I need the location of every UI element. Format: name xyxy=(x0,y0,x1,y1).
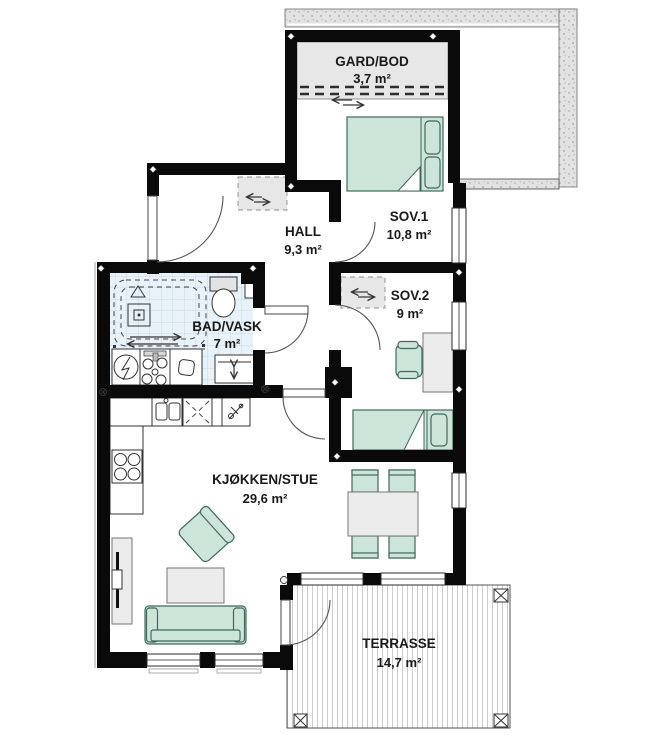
deck-post xyxy=(294,714,307,727)
double-bed xyxy=(347,117,443,191)
room-label-sov1: SOV.1 xyxy=(390,209,429,224)
floorplan-page: GARD/BOD 3,7 m² SOV.1 10,8 m² HALL 9,3 m… xyxy=(0,0,650,750)
dining-table xyxy=(348,492,418,536)
window-bottom-1 xyxy=(147,654,200,673)
neighbour-wall xyxy=(455,179,559,189)
pillow xyxy=(431,414,447,446)
window-sov2 xyxy=(452,302,466,350)
window-south-1 xyxy=(301,573,363,585)
dining-set xyxy=(348,470,418,558)
sov1-door xyxy=(335,222,375,262)
dining-chair-back xyxy=(352,470,378,475)
room-area-kjokkenstue: 29,6 m² xyxy=(243,491,288,506)
dining-chair-back xyxy=(389,470,415,475)
hall-wardrobe xyxy=(238,177,287,210)
deck-post xyxy=(494,714,508,727)
bathroom-door xyxy=(265,306,308,353)
toilet xyxy=(210,277,237,317)
room-area-sov2: 9 m² xyxy=(397,306,424,321)
pipe-symbol xyxy=(281,577,288,584)
living-room-door xyxy=(283,389,325,439)
dryer xyxy=(140,349,170,385)
room-label-badvask: BAD/VASK xyxy=(192,319,262,334)
laundry-sink xyxy=(170,349,202,385)
single-bed xyxy=(353,410,453,450)
room-label-gardbod: GARD/BOD xyxy=(335,54,409,69)
pillow xyxy=(425,121,440,154)
exterior-wall-right xyxy=(559,9,577,187)
dining-chair-back xyxy=(389,553,415,558)
sov2-wardrobe xyxy=(341,277,385,308)
room-area-terrasse: 14,7 m² xyxy=(377,655,422,670)
desk xyxy=(423,333,453,392)
window-bottom-2 xyxy=(215,654,263,673)
washing-machine xyxy=(112,349,140,385)
sov2-door xyxy=(335,305,380,350)
room-area-sov1: 10,8 m² xyxy=(387,227,432,242)
kitchen-counter xyxy=(110,398,250,514)
window-south-2 xyxy=(381,573,445,585)
coffee-table xyxy=(167,568,224,603)
window-living-east xyxy=(452,473,466,508)
room-area-hall: 9,3 m² xyxy=(284,242,322,257)
room-area-badvask: 7 m² xyxy=(214,336,241,351)
dining-chair-back xyxy=(352,553,378,558)
bathroom-vanity xyxy=(215,355,254,383)
deck-post xyxy=(494,589,508,602)
room-label-hall: HALL xyxy=(285,224,321,239)
floorplan-drawing: GARD/BOD 3,7 m² SOV.1 10,8 m² HALL 9,3 m… xyxy=(0,0,650,750)
tv-bench xyxy=(112,538,132,624)
room-label-kjokkenstue: KJØKKEN/STUE xyxy=(212,472,318,487)
pillow xyxy=(425,157,440,188)
armchair xyxy=(176,505,235,564)
entry-door xyxy=(148,196,223,262)
room-area-gardbod: 3,7 m² xyxy=(353,71,391,86)
window-sov1 xyxy=(452,208,466,263)
desk-chair xyxy=(396,342,422,379)
sofa xyxy=(145,606,246,644)
room-label-sov2: SOV.2 xyxy=(391,288,430,303)
room-label-terrasse: TERRASSE xyxy=(362,636,436,651)
